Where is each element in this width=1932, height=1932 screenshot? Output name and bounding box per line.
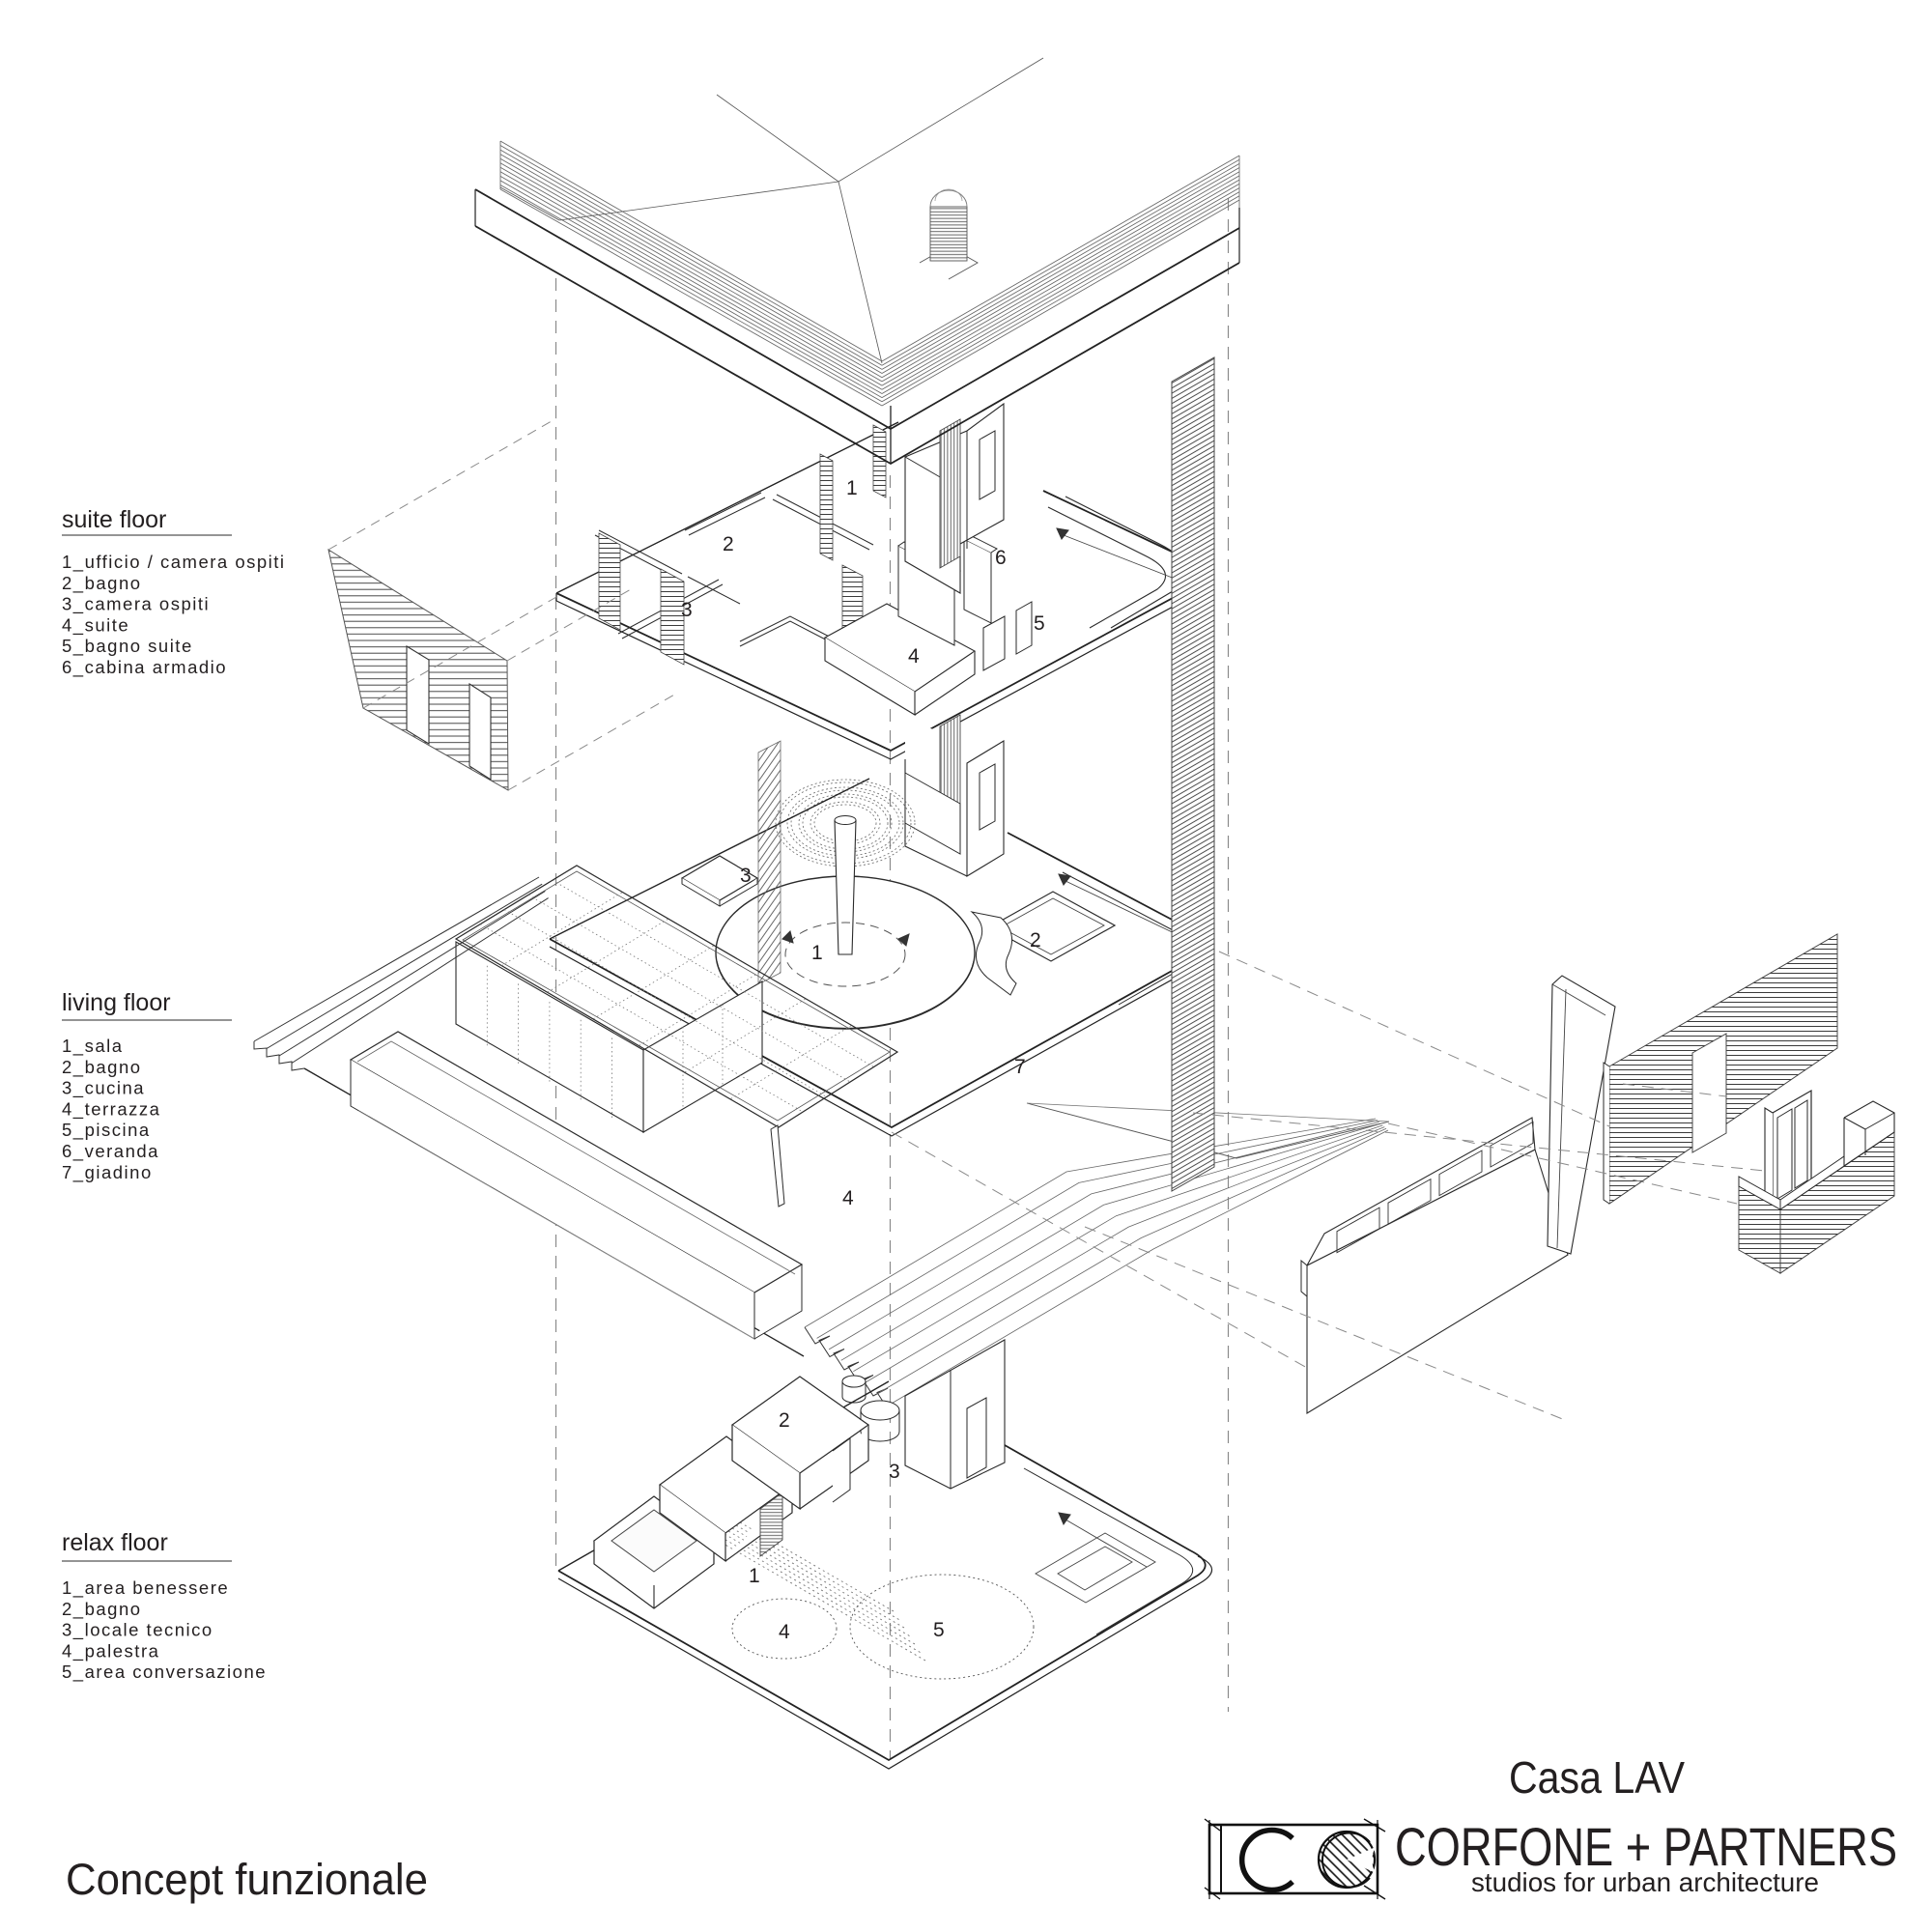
svg-text:3: 3 xyxy=(740,865,752,887)
svg-text:1: 1 xyxy=(811,942,823,964)
svg-text:suite floor: suite floor xyxy=(62,506,166,533)
svg-text:7_giadino: 7_giadino xyxy=(62,1162,153,1183)
svg-text:Casa LAV: Casa LAV xyxy=(1509,1752,1685,1803)
svg-text:studios for urban architecture: studios for urban architecture xyxy=(1471,1867,1819,1897)
svg-text:3_cucina: 3_cucina xyxy=(62,1078,145,1099)
svg-text:6_cabina armadio: 6_cabina armadio xyxy=(62,657,227,678)
svg-text:1_area benessere: 1_area benessere xyxy=(62,1577,229,1599)
svg-text:2: 2 xyxy=(723,533,734,555)
svg-text:3: 3 xyxy=(681,599,693,621)
svg-text:2_bagno: 2_bagno xyxy=(62,1057,142,1078)
svg-text:3: 3 xyxy=(889,1461,900,1483)
svg-text:5_bagno suite: 5_bagno suite xyxy=(62,636,193,657)
svg-text:4_suite: 4_suite xyxy=(62,614,129,636)
svg-text:4: 4 xyxy=(779,1621,790,1643)
svg-text:Concept funzionale: Concept funzionale xyxy=(66,1855,428,1904)
svg-text:5: 5 xyxy=(1034,612,1045,635)
svg-text:4: 4 xyxy=(908,645,920,668)
svg-text:2: 2 xyxy=(1030,929,1041,952)
svg-text:1: 1 xyxy=(846,477,858,499)
svg-text:4_terrazza: 4_terrazza xyxy=(62,1098,160,1120)
svg-text:living floor: living floor xyxy=(62,989,171,1016)
svg-text:1: 1 xyxy=(749,1565,760,1587)
svg-text:relax floor: relax floor xyxy=(62,1529,168,1556)
svg-text:3_locale tecnico: 3_locale tecnico xyxy=(62,1620,213,1641)
svg-text:2: 2 xyxy=(779,1409,790,1432)
svg-text:3_camera ospiti: 3_camera ospiti xyxy=(62,594,210,615)
svg-text:5_area conversazione: 5_area conversazione xyxy=(62,1662,267,1683)
svg-text:6_veranda: 6_veranda xyxy=(62,1141,159,1162)
svg-text:5_piscina: 5_piscina xyxy=(62,1120,151,1141)
svg-text:7: 7 xyxy=(1014,1056,1026,1078)
svg-text:4: 4 xyxy=(842,1187,854,1209)
svg-text:2_bagno: 2_bagno xyxy=(62,1599,142,1620)
svg-text:1_ufficio / camera ospiti: 1_ufficio / camera ospiti xyxy=(62,552,286,573)
svg-text:1_sala: 1_sala xyxy=(62,1036,124,1057)
svg-text:5: 5 xyxy=(933,1619,945,1641)
svg-text:6: 6 xyxy=(995,547,1007,569)
svg-text:4_palestra: 4_palestra xyxy=(62,1640,159,1662)
svg-text:2_bagno: 2_bagno xyxy=(62,573,142,594)
